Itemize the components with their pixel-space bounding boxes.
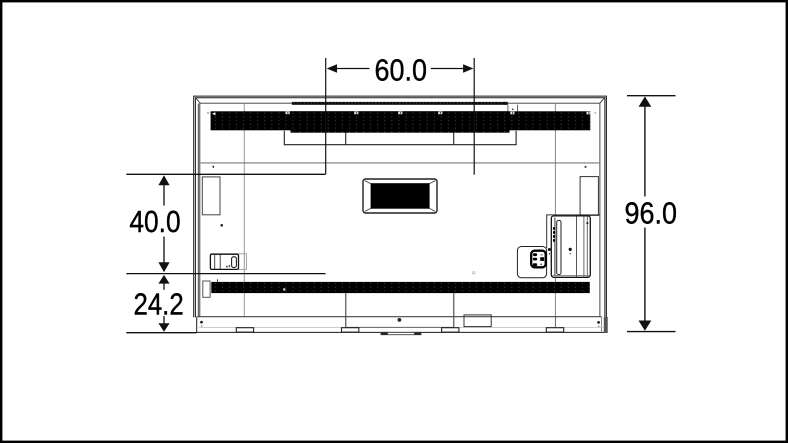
svg-text:24.2: 24.2 <box>134 286 184 321</box>
svg-text:40.0: 40.0 <box>129 204 180 239</box>
svg-text:96.0: 96.0 <box>625 195 678 230</box>
svg-text:60.0: 60.0 <box>375 53 428 88</box>
